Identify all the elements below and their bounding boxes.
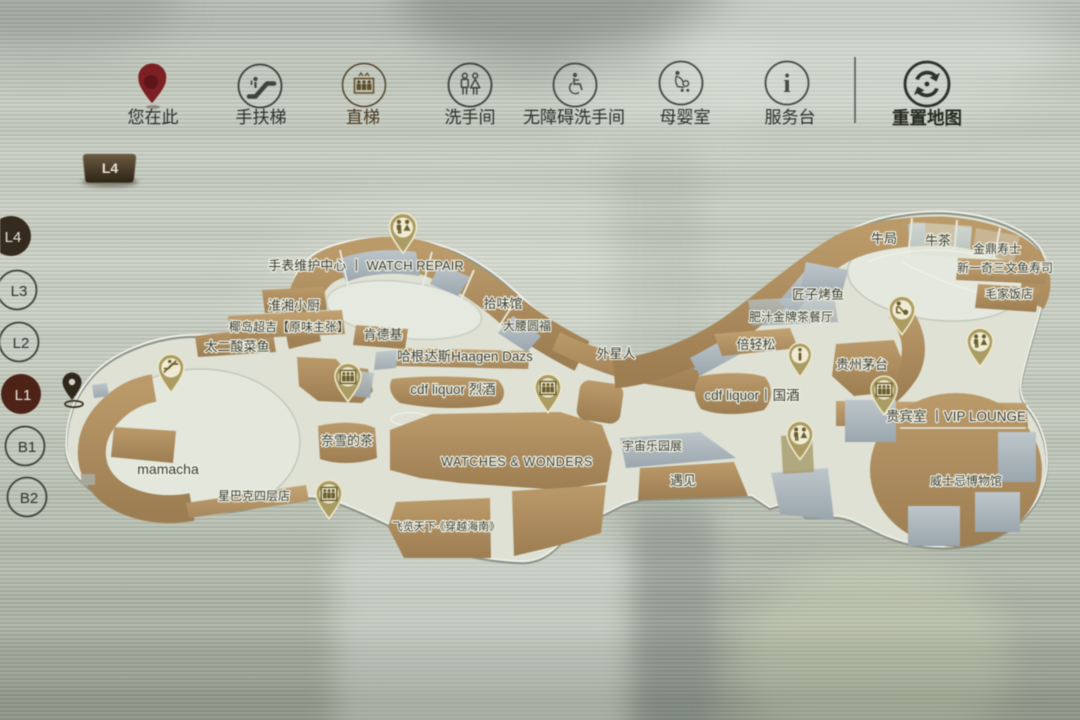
svg-text:匠子烤鱼: 匠子烤鱼 <box>792 287 844 302</box>
svg-text:mamacha: mamacha <box>137 461 199 477</box>
svg-text:直梯: 直梯 <box>346 108 380 127</box>
svg-text:洗手间: 洗手间 <box>445 108 496 127</box>
svg-text:L4: L4 <box>102 160 119 176</box>
svg-text:遇见: 遇见 <box>670 473 696 488</box>
svg-text:手表维护中心 丨 WATCH REPAIR: 手表维护中心 丨 WATCH REPAIR <box>268 258 463 273</box>
svg-text:i: i <box>783 69 790 98</box>
svg-text:拾味馆: 拾味馆 <box>483 296 522 311</box>
svg-text:奈雪的茶: 奈雪的茶 <box>321 433 373 448</box>
svg-text:飞览天下·《穿越海南》: 飞览天下·《穿越海南》 <box>392 519 500 533</box>
svg-text:肯德基: 肯德基 <box>363 327 402 342</box>
svg-text:B1: B1 <box>18 439 36 456</box>
svg-text:宇宙乐园展: 宇宙乐园展 <box>622 438 682 453</box>
svg-text:L1: L1 <box>15 387 32 404</box>
svg-text:牛局: 牛局 <box>871 231 897 246</box>
svg-text:L3: L3 <box>11 283 28 300</box>
svg-text:无障碍洗手间: 无障碍洗手间 <box>523 108 625 127</box>
svg-text:淮湘小厨: 淮湘小厨 <box>268 298 320 313</box>
svg-text:贵州茅台: 贵州茅台 <box>836 357 888 372</box>
svg-text:倍轻松: 倍轻松 <box>736 337 775 352</box>
svg-text:cdf liquor丨国酒: cdf liquor丨国酒 <box>704 388 799 403</box>
svg-text:毛家饭店: 毛家饭店 <box>985 286 1033 301</box>
svg-text:新一奇三文鱼寿司: 新一奇三文鱼寿司 <box>957 260 1053 275</box>
svg-text:太二酸菜鱼: 太二酸菜鱼 <box>204 339 269 354</box>
svg-text:cdf liquor 烈酒: cdf liquor 烈酒 <box>410 382 496 397</box>
svg-text:母婴室: 母婴室 <box>660 108 711 127</box>
svg-text:L2: L2 <box>13 335 30 352</box>
svg-text:服务台: 服务台 <box>765 108 816 127</box>
svg-text:外星人: 外星人 <box>596 346 635 361</box>
svg-text:星巴克四层店: 星巴克四层店 <box>218 489 290 503</box>
svg-text:哈根达斯Haagen Dazs: 哈根达斯Haagen Dazs <box>397 349 533 364</box>
svg-text:您在此: 您在此 <box>128 108 179 127</box>
svg-text:手扶梯: 手扶梯 <box>236 108 287 127</box>
svg-text:L4: L4 <box>5 229 22 246</box>
svg-text:肥汁金牌茶餐厅: 肥汁金牌茶餐厅 <box>749 309 833 324</box>
svg-text:贵宾室 丨VIP LOUNGE: 贵宾室 丨VIP LOUNGE <box>886 408 1026 424</box>
svg-text:金鼎寿士: 金鼎寿士 <box>973 241 1021 256</box>
svg-text:威士忌博物馆: 威士忌博物馆 <box>930 473 1002 488</box>
svg-text:B2: B2 <box>20 490 38 507</box>
svg-text:重置地图: 重置地图 <box>892 108 962 128</box>
svg-text:WATCHES & WONDERS: WATCHES & WONDERS <box>441 455 593 469</box>
svg-text:牛茶: 牛茶 <box>925 233 951 248</box>
svg-text:大腰圆福: 大腰圆福 <box>503 318 551 333</box>
svg-text:椰岛超吉【原味主张】: 椰岛超吉【原味主张】 <box>229 319 349 334</box>
